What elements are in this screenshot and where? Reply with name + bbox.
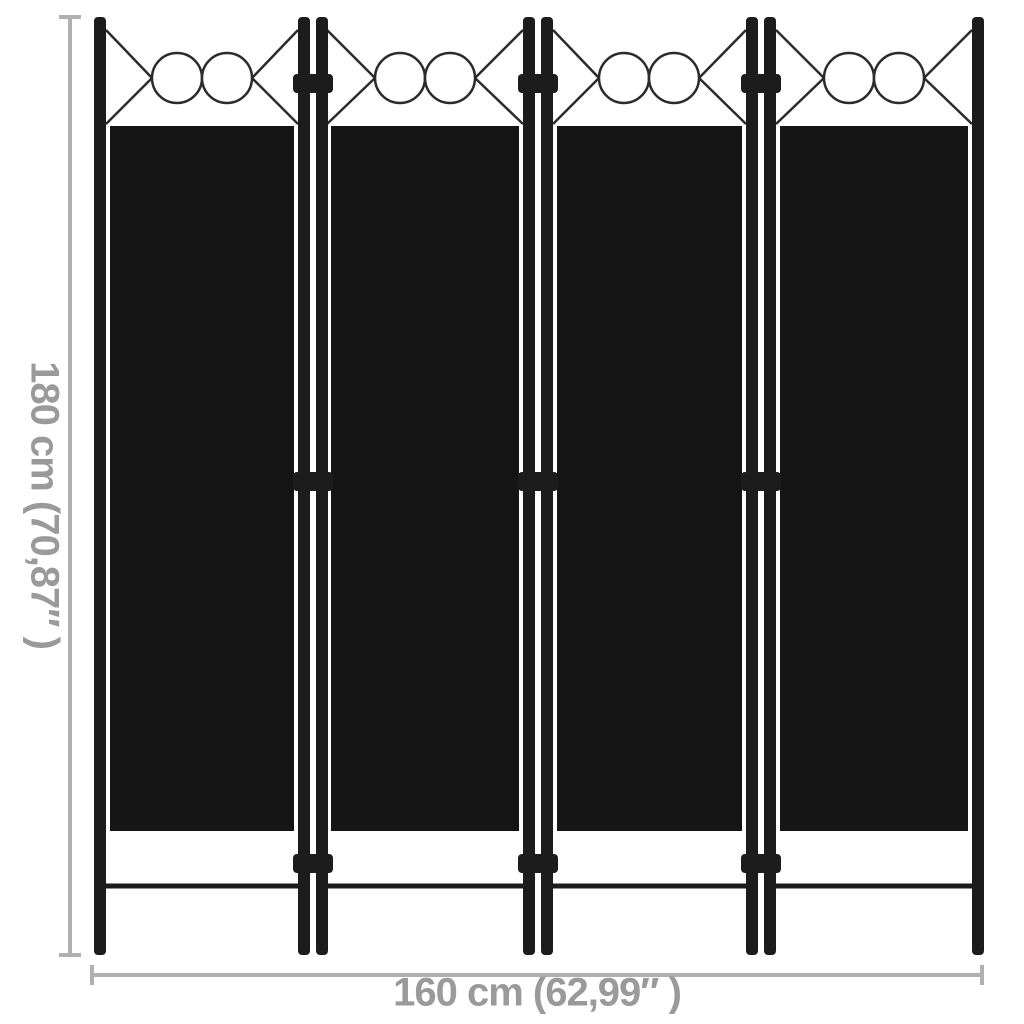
decor-circle [824,53,874,103]
decor-circle [599,53,649,103]
diagonal-line [553,78,599,124]
hinge-middle [741,472,781,491]
decor-circle [874,53,924,103]
diagonal-line [553,30,599,78]
height-dimension-label: 180 cm (70,87″ ) [22,361,67,649]
fabric-panel-1 [110,126,294,831]
pole-outer-left [94,17,106,955]
diagonal-line [924,30,972,78]
hinge-bottom [741,854,781,873]
fabric-panel-4 [780,126,968,831]
hinge-bottom [518,854,558,873]
diagonal-line [252,30,298,78]
hinge-top [741,74,781,93]
hinge-middle [293,472,333,491]
product-dimension-diagram: 180 cm (70,87″ ) 160 cm (62,99″ ) [0,0,1024,1024]
diagonal-line [106,30,152,78]
diagonal-line [699,78,746,124]
hinge-middle [518,472,558,491]
decor-circle [425,53,475,103]
decor-circle [152,53,202,103]
room-divider-illustration [0,0,1024,1024]
fabric-panel-2 [331,126,519,831]
diagonal-line [699,30,746,78]
diagonal-line [776,78,824,124]
diagonal-line [475,30,523,78]
diagonal-line [252,78,298,124]
pole-outer-right [972,17,984,955]
hinge-top [518,74,558,93]
diagonal-line [327,30,375,78]
hinge-top [293,74,333,93]
decor-circle [375,53,425,103]
fabric-panel-3 [557,126,742,831]
decor-circle [649,53,699,103]
diagonal-line [924,78,972,124]
diagonal-line [475,78,523,124]
hinge-bottom [293,854,333,873]
diagonal-line [106,78,152,124]
diagonal-line [776,30,824,78]
panel-1-top-decoration [106,30,298,124]
panel-2-top-decoration [327,30,523,124]
panel-3-top-decoration [553,30,746,124]
diagonal-line [327,78,375,124]
panel-4-top-decoration [776,30,972,124]
decor-circle [202,53,252,103]
width-dimension-label: 160 cm (62,99″ ) [393,971,681,1016]
